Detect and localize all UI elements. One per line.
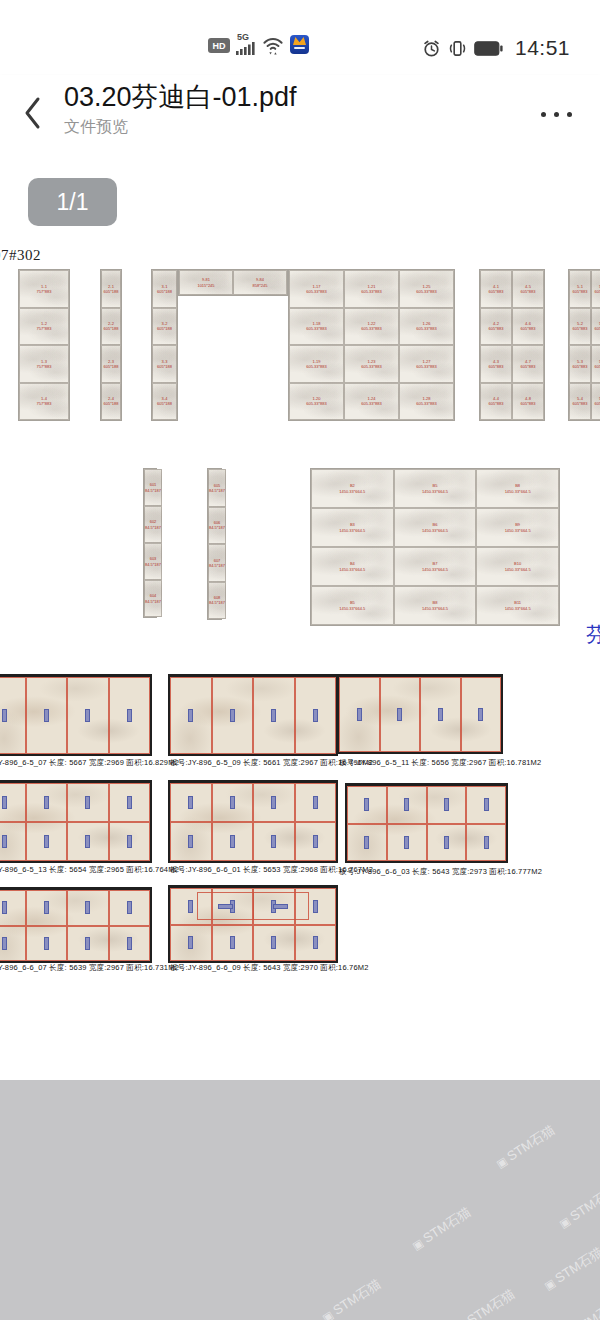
tile-dimension-label: 5-4 605*883 xyxy=(573,396,588,406)
marble-tile: 4-5 605*883 xyxy=(512,270,544,308)
tile-dimension-label: 4-7 605*883 xyxy=(521,359,536,369)
marble-tile: 608 84.5*187 xyxy=(208,582,226,620)
slab-grid-cell xyxy=(109,890,151,926)
marble-tile: 607 84.5*187 xyxy=(208,544,226,582)
marble-tile: 1-26 605.33*883 xyxy=(399,308,454,346)
watermark: ▣STM石猫 xyxy=(408,1203,474,1255)
marble-tile: B4 1450.33*664.5 xyxy=(311,547,394,586)
marble-tile: 1-18 605.33*883 xyxy=(289,308,344,346)
tile-group-panel-d: 4-1 605*8834-5 605*8834-2 605*8834-6 605… xyxy=(479,269,545,421)
network-type-label: 5G xyxy=(237,33,249,42)
slab-photo-2 xyxy=(168,674,338,756)
slab-photo-4 xyxy=(0,780,152,863)
marble-tile: 3-4 605*188 xyxy=(152,383,177,421)
tile-dimension-label: 3-4 605*188 xyxy=(157,396,172,406)
tile-group-strip-a: 601 84.5*187602 84.5*187603 84.5*187604 … xyxy=(143,468,157,618)
watermark: ▣STM石猫 xyxy=(555,1181,600,1233)
marble-tile: 2-2 605*188 xyxy=(101,308,121,346)
tile-dimension-label: B8 1450.33*664.5 xyxy=(422,600,448,610)
marble-tile: 1-4 757*883 xyxy=(19,383,69,421)
tile-dimension-label: 9-84 858*245 xyxy=(253,277,268,287)
slab-photo-1 xyxy=(0,674,152,756)
marble-tile: 5-7 605*883 xyxy=(591,345,600,383)
page-subtitle: 文件预览 xyxy=(64,117,297,138)
tile-dimension-label: B8 1450.33*664.5 xyxy=(505,483,531,493)
tile-dimension-label: B5 1450.33*664.5 xyxy=(422,483,448,493)
slab-grid-cell xyxy=(253,783,295,822)
tile-dimension-label: 606 84.5*187 xyxy=(209,520,225,530)
tile-group-panel-a: 1-1 757*8831-2 757*8831-3 757*8831-4 757… xyxy=(18,269,70,421)
tile-dimension-label: 4-8 605*883 xyxy=(521,396,536,406)
marble-tile: 603 84.5*187 xyxy=(144,543,162,580)
file-title: 03.20芬迪白-01.pdf xyxy=(64,81,297,115)
marble-tile: 4-1 605*883 xyxy=(480,270,512,308)
tile-dimension-label: B2 1450.33*664.5 xyxy=(339,483,365,493)
marble-tile: 4-2 605*883 xyxy=(480,308,512,346)
slab-grid-cell xyxy=(170,925,212,962)
layout-mark xyxy=(127,937,132,950)
slab-grid-cell xyxy=(420,677,461,752)
slab-grid-cell xyxy=(347,786,387,824)
watermark: ▣STM石猫 xyxy=(540,1243,600,1295)
signal-bars-glyph xyxy=(236,42,256,55)
tile-dimension-label: 1-4 757*883 xyxy=(37,396,52,406)
tile-group-panel-b: 2-1 605*1882-2 605*1882-3 605*1882-4 605… xyxy=(100,269,122,421)
watermark-text: STM石猫 xyxy=(330,1275,385,1319)
slab-grid-cell xyxy=(109,783,151,822)
tile-dimension-label: 5-2 605*883 xyxy=(573,321,588,331)
layout-mark xyxy=(44,796,49,809)
marble-tile: 9-81 1015*245 xyxy=(179,270,233,295)
tile-group-strip-b: 605 84.5*187606 84.5*187607 84.5*187608 … xyxy=(207,468,222,620)
watermark-text: STM石猫 xyxy=(464,1285,519,1320)
tile-dimension-label: 607 84.5*187 xyxy=(209,558,225,568)
layout-mark xyxy=(188,835,193,848)
tile-dimension-label: B7 1450.33*664.5 xyxy=(422,561,448,571)
marble-tile: B9 1450.33*664.5 xyxy=(476,508,559,547)
slab-grid-cell xyxy=(253,677,295,754)
tile-dimension-label: 4-6 605*883 xyxy=(521,321,536,331)
tile-dimension-label: 5-6 605*883 xyxy=(595,321,600,331)
layout-mark xyxy=(2,901,7,914)
layout-mark xyxy=(357,708,362,721)
viewer-footer-area: ▣STM石猫▣STM石猫▣STM石猫▣STM石猫▣STM石猫▣STM石猫▣STM… xyxy=(0,1080,600,1320)
layout-mark xyxy=(2,937,7,950)
watermark: ▣STM石猫 xyxy=(452,1285,518,1320)
layout-mark xyxy=(85,796,90,809)
tile-dimension-label: 2-1 605*188 xyxy=(104,284,119,294)
marble-tile: B5 1450.33*664.5 xyxy=(394,469,477,508)
marble-tile: B2 1450.33*664.5 xyxy=(311,469,394,508)
marble-tile: 5-6 605*883 xyxy=(591,308,600,346)
slab-caption-8: 板号:JY-896_6-6_09 长度: 5643 宽度:2970 面积:16.… xyxy=(170,963,369,973)
slab-grid-cell xyxy=(67,783,109,822)
marble-tile: B7 1450.33*664.5 xyxy=(394,547,477,586)
slab-grid-cell xyxy=(0,677,26,754)
marble-tile: 1-24 605.33*883 xyxy=(344,383,399,421)
tile-dimension-label: 5-1 605*883 xyxy=(573,284,588,294)
tile-dimension-label: 5-8 605*883 xyxy=(595,396,600,406)
layout-mark xyxy=(313,796,318,809)
slab-grid-cell xyxy=(295,677,337,754)
marble-tile: 602 84.5*187 xyxy=(144,506,162,543)
page-indicator-badge: 1/1 xyxy=(28,178,117,226)
phone-screen: { "status_bar": { "time": "14:51", "hd_l… xyxy=(0,0,600,1320)
layout-mark xyxy=(230,835,235,848)
marble-tile: 1-22 605.33*883 xyxy=(344,308,399,346)
tile-dimension-label: 1-17 605.33*883 xyxy=(306,284,326,294)
app-icon xyxy=(290,35,309,54)
slab-grid-cell xyxy=(387,786,427,824)
layout-mark xyxy=(127,901,132,914)
marble-tile: 3-3 605*188 xyxy=(152,345,177,383)
slab-grid-cell xyxy=(212,783,254,822)
tile-dimension-label: B11 1450.33*664.5 xyxy=(505,600,531,610)
tile-dimension-label: 1-19 605.33*883 xyxy=(306,359,326,369)
tile-dimension-label: 1-18 605.33*883 xyxy=(306,321,326,331)
marble-tile: B8 1450.33*664.5 xyxy=(476,469,559,508)
marble-tile: 3-2 605*188 xyxy=(152,308,177,346)
menu-dot-icon xyxy=(567,112,572,117)
layout-mark xyxy=(313,709,318,722)
layout-mark xyxy=(85,937,90,950)
tile-dimension-label: 1-20 605.33*883 xyxy=(306,396,326,406)
watermark: ▣STM石猫 xyxy=(492,1121,558,1173)
slab-grid-cell xyxy=(109,822,151,861)
tile-dimension-label: 1-22 605.33*883 xyxy=(361,321,381,331)
slab-grid-cell xyxy=(347,824,387,862)
layout-mark xyxy=(85,709,90,722)
tile-dimension-label: 3-3 605*188 xyxy=(157,359,172,369)
layout-mark xyxy=(271,835,276,848)
marble-tile: 4-4 605*883 xyxy=(480,383,512,421)
layout-mark xyxy=(397,708,402,721)
layout-mark xyxy=(273,904,288,909)
tile-dimension-label: 5-7 605*883 xyxy=(595,359,600,369)
tile-dimension-label: 2-3 605*188 xyxy=(104,359,119,369)
slab-grid-cell xyxy=(212,822,254,861)
tile-group-panel-e: 5-1 605*8835-5 605*8835-2 605*8835-6 605… xyxy=(568,269,600,421)
layout-mark xyxy=(2,709,7,722)
marble-tile: 4-6 605*883 xyxy=(512,308,544,346)
wifi-icon xyxy=(262,36,284,55)
marble-tile: 1-25 605.33*883 xyxy=(399,270,454,308)
layout-mark xyxy=(218,904,233,909)
vibrate-icon xyxy=(449,39,466,58)
tile-dimension-label: 603 84.5*187 xyxy=(145,556,161,566)
marble-tile: B5 1450.33*664.5 xyxy=(311,586,394,625)
slab-grid-cell xyxy=(295,822,337,861)
tile-dimension-label: 4-4 605*883 xyxy=(489,396,504,406)
app-icon-crown xyxy=(293,37,306,45)
back-chevron-icon xyxy=(22,95,44,131)
slab-grid-cell xyxy=(26,890,68,926)
slab-grid-cell xyxy=(109,677,151,754)
slab-grid-cell xyxy=(0,926,26,962)
slab-photo-8 xyxy=(168,885,338,963)
marble-tile: 5-2 605*883 xyxy=(569,308,591,346)
app-icon-bar xyxy=(294,47,305,49)
marble-tile: 1-27 605.33*883 xyxy=(399,345,454,383)
watermark-text: STM石猫 xyxy=(567,1181,600,1225)
header-titles: 03.20芬迪白-01.pdf 文件预览 xyxy=(64,81,297,138)
tile-dimension-label: B5 1450.33*664.5 xyxy=(339,600,365,610)
tile-dimension-label: 602 84.5*187 xyxy=(145,519,161,529)
marble-tile: 601 84.5*187 xyxy=(144,469,162,506)
slab-grid-cell xyxy=(26,926,68,962)
slab-grid-cell xyxy=(380,677,421,752)
marble-tile: 606 84.5*187 xyxy=(208,507,226,545)
layout-mark xyxy=(127,796,132,809)
tile-dimension-label: B4 1450.33*664.5 xyxy=(339,561,365,571)
marble-tile: 2-3 605*188 xyxy=(101,345,121,383)
slab-photo-3 xyxy=(337,674,503,754)
layout-mark xyxy=(364,836,369,849)
marble-tile: 5-8 605*883 xyxy=(591,383,600,421)
slab-grid-cell xyxy=(427,824,467,862)
slab-grid-cell xyxy=(170,822,212,861)
menu-dot-icon xyxy=(554,112,559,117)
slab-grid-cell xyxy=(26,822,68,861)
marble-tile: 5-4 605*883 xyxy=(569,383,591,421)
slab-grid-cell xyxy=(0,822,26,861)
layout-mark xyxy=(478,708,483,721)
clock-time: 14:51 xyxy=(515,36,570,60)
slab-grid-cell xyxy=(26,677,68,754)
drawing-side-char: 芬 xyxy=(586,621,600,648)
slab-grid-cell xyxy=(466,786,506,824)
battery-icon xyxy=(474,41,503,56)
alarm-clock-icon xyxy=(422,39,441,58)
layout-mark xyxy=(2,796,7,809)
tile-dimension-label: 1-24 605.33*883 xyxy=(361,396,381,406)
tile-dimension-label: 1-2 757*883 xyxy=(37,321,52,331)
slab-photo-6 xyxy=(345,783,508,863)
slab-caption-1: 板号:JY-896_6-5_07 长度: 5667 宽度:2969 面积:16.… xyxy=(0,758,179,768)
slab-grid-cell xyxy=(295,925,337,962)
marble-tile: 1-21 605.33*883 xyxy=(344,270,399,308)
tile-dimension-label: 601 84.5*187 xyxy=(145,482,161,492)
slab-grid-cell xyxy=(387,824,427,862)
layout-mark xyxy=(404,798,409,811)
layout-mark xyxy=(404,836,409,849)
marble-tile: 2-4 605*188 xyxy=(101,383,121,421)
tile-dimension-label: 3-2 605*188 xyxy=(157,321,172,331)
drawing-corner-label: 07#302 xyxy=(0,247,41,264)
marble-tile: 1-19 605.33*883 xyxy=(289,345,344,383)
layout-mark xyxy=(44,835,49,848)
layout-mark xyxy=(127,709,132,722)
tile-dimension-label: 1-1 757*883 xyxy=(37,284,52,294)
tile-dimension-label: 4-1 605*883 xyxy=(489,284,504,294)
layout-mark xyxy=(2,835,7,848)
slab-grid-cell xyxy=(295,783,337,822)
marble-tile: B3 1450.33*664.5 xyxy=(311,508,394,547)
marble-tile: 604 84.5*187 xyxy=(144,580,162,617)
slab-band-cell xyxy=(254,893,309,919)
layout-mark xyxy=(364,798,369,811)
slab-grid-cell xyxy=(427,786,467,824)
marble-tile: 3-1 605*188 xyxy=(152,270,177,308)
tile-dimension-label: 1-21 605.33*883 xyxy=(361,284,381,294)
tile-dimension-label: 1-28 605.33*883 xyxy=(416,396,436,406)
slab-grid-cell xyxy=(170,677,212,754)
slab-grid-cell xyxy=(466,824,506,862)
tile-dimension-label: 5-5 605*883 xyxy=(595,284,600,294)
layout-mark xyxy=(313,900,318,913)
layout-mark xyxy=(271,709,276,722)
slab-photo-7 xyxy=(0,887,152,963)
marble-tile: B10 1450.33*664.5 xyxy=(476,547,559,586)
slab-grid-cell xyxy=(67,926,109,962)
more-menu-button[interactable] xyxy=(528,101,572,127)
marble-tile: 2-1 605*188 xyxy=(101,270,121,308)
layout-mark xyxy=(188,796,193,809)
layout-mark xyxy=(230,709,235,722)
marble-tile: 1-2 757*883 xyxy=(19,308,69,346)
pdf-viewport[interactable]: 1/1 07#302 1-1 757*8831-2 757*8831-3 757… xyxy=(0,151,600,1080)
tile-dimension-label: 3-1 605*188 xyxy=(157,284,172,294)
marble-tile: 605 84.5*187 xyxy=(208,469,226,507)
tile-dimension-label: B10 1450.33*664.5 xyxy=(505,561,531,571)
marble-tile: B6 1450.33*664.5 xyxy=(394,508,477,547)
marble-tile: 9-84 858*245 xyxy=(233,270,287,295)
tile-dimension-label: 2-4 605*188 xyxy=(104,396,119,406)
menu-dot-icon xyxy=(541,112,546,117)
slab-caption-7: 板号:JY-896_6-6_07 长度: 5639 宽度:2967 面积:16.… xyxy=(0,963,179,973)
marble-tile: 5-3 605*883 xyxy=(569,345,591,383)
slab-caption-6: 板号:JY-896_6-6_03 长度: 5643 宽度:2973 面积:16.… xyxy=(339,867,542,877)
tile-dimension-label: 1-26 605.33*883 xyxy=(416,321,436,331)
marble-tile: 1-1 757*883 xyxy=(19,270,69,308)
layout-mark xyxy=(44,901,49,914)
status-left-cluster: HD 5G xyxy=(208,33,309,55)
watermark-text: STM石猫 xyxy=(552,1243,600,1287)
marble-tile: 4-8 605*883 xyxy=(512,383,544,421)
tile-dimension-label: 4-2 605*883 xyxy=(489,321,504,331)
marble-tile: 5-1 605*883 xyxy=(569,270,591,308)
layout-mark xyxy=(188,900,193,913)
slab-grid-cell xyxy=(170,783,212,822)
tile-dimension-label: 4-5 605*883 xyxy=(521,284,536,294)
slab-grid-cell xyxy=(67,890,109,926)
layout-mark xyxy=(85,835,90,848)
slab-grid-cell xyxy=(253,925,295,962)
tile-dimension-label: 604 84.5*187 xyxy=(145,593,161,603)
slab-grid-cell xyxy=(67,822,109,861)
slab-grid-cell xyxy=(253,822,295,861)
slab-grid-cell xyxy=(212,677,254,754)
hd-icon: HD xyxy=(208,38,230,53)
layout-mark xyxy=(271,936,276,949)
layout-mark xyxy=(271,796,276,809)
layout-mark xyxy=(230,936,235,949)
watermark-text: STM石猫 xyxy=(420,1203,475,1247)
slab-grid-cell xyxy=(26,783,68,822)
watermark-text: STM石猫 xyxy=(504,1121,559,1165)
layout-mark xyxy=(230,796,235,809)
tile-dimension-label: 1-23 605.33*883 xyxy=(361,359,381,369)
marble-tile: 1-28 605.33*883 xyxy=(399,383,454,421)
marble-tile: 5-5 605*883 xyxy=(591,270,600,308)
tile-dimension-label: 1-27 605.33*883 xyxy=(416,359,436,369)
watermark: ▣STM石猫 xyxy=(318,1275,384,1320)
slab-grid-cell xyxy=(339,677,380,752)
watermark-text: STM石猫 xyxy=(570,1295,600,1320)
tile-dimension-label: 4-3 605*883 xyxy=(489,359,504,369)
slab-caption-4: 板号:JY-896_6-5_13 长度: 5654 宽度:2965 面积:16.… xyxy=(0,865,179,875)
tile-group-wall-lower: B2 1450.33*664.5B5 1450.33*664.5B8 1450.… xyxy=(310,468,560,626)
slab-grid-cell xyxy=(212,925,254,962)
marble-tile: 1-3 757*883 xyxy=(19,345,69,383)
layout-mark xyxy=(313,936,318,949)
marble-tile: 1-23 605.33*883 xyxy=(344,345,399,383)
marble-tile: B11 1450.33*664.5 xyxy=(476,586,559,625)
tile-dimension-label: 605 84.5*187 xyxy=(209,483,225,493)
tile-dimension-label: 1-3 757*883 xyxy=(37,359,52,369)
header: 03.20芬迪白-01.pdf 文件预览 xyxy=(0,75,600,152)
tile-dimension-label: 2-2 605*188 xyxy=(104,321,119,331)
tile-dimension-label: 9-81 1015*245 xyxy=(197,277,214,287)
tile-dimension-label: 5-3 605*883 xyxy=(573,359,588,369)
tile-group-door-top: 9-81 1015*2459-84 858*245 xyxy=(178,269,288,296)
layout-mark xyxy=(438,708,443,721)
tile-dimension-label: B9 1450.33*664.5 xyxy=(505,522,531,532)
tile-dimension-label: 608 84.5*187 xyxy=(209,595,225,605)
marble-tile: 1-20 605.33*883 xyxy=(289,383,344,421)
layout-mark xyxy=(484,836,489,849)
marble-tile: B8 1450.33*664.5 xyxy=(394,586,477,625)
slab-band-cell xyxy=(198,893,254,919)
marble-tile: 1-17 605.33*883 xyxy=(289,270,344,308)
slab-photo-5 xyxy=(168,780,338,863)
signal-bars-icon: 5G xyxy=(236,33,256,55)
tile-group-wall-main: 1-17 605.33*8831-21 605.33*8831-25 605.3… xyxy=(288,269,455,421)
marble-tile: 4-7 605*883 xyxy=(512,345,544,383)
layout-mark xyxy=(444,798,449,811)
status-bar: HD 5G xyxy=(0,0,600,75)
slab-grid-cell xyxy=(67,677,109,754)
tile-dimension-label: B3 1450.33*664.5 xyxy=(339,522,365,532)
tile-group-door-left: 3-1 605*1883-2 605*1883-3 605*1883-4 605… xyxy=(151,269,178,421)
status-right-cluster: 14:51 xyxy=(422,36,570,60)
layout-mark xyxy=(127,835,132,848)
layout-mark xyxy=(313,835,318,848)
slab-grid-cell xyxy=(0,783,26,822)
marble-tile: 4-3 605*883 xyxy=(480,345,512,383)
tile-dimension-label: 1-25 605.33*883 xyxy=(416,284,436,294)
layout-mark xyxy=(484,798,489,811)
slab-caption-3: 板号:JY-896_6-5_11 长度: 5656 宽度:2967 面积:16.… xyxy=(339,758,541,768)
layout-mark xyxy=(85,901,90,914)
tile-dimension-label: B6 1450.33*664.5 xyxy=(422,522,448,532)
layout-mark xyxy=(188,709,193,722)
layout-mark xyxy=(44,937,49,950)
slab-grid-cell xyxy=(461,677,502,752)
watermark: ▣STM石猫 xyxy=(558,1295,600,1320)
slab-grid-cell xyxy=(109,926,151,962)
slab-grid-cell xyxy=(0,890,26,926)
layout-mark xyxy=(188,936,193,949)
layout-mark xyxy=(444,836,449,849)
slab-top-band xyxy=(197,892,310,920)
back-button[interactable] xyxy=(22,93,48,133)
layout-mark xyxy=(44,709,49,722)
